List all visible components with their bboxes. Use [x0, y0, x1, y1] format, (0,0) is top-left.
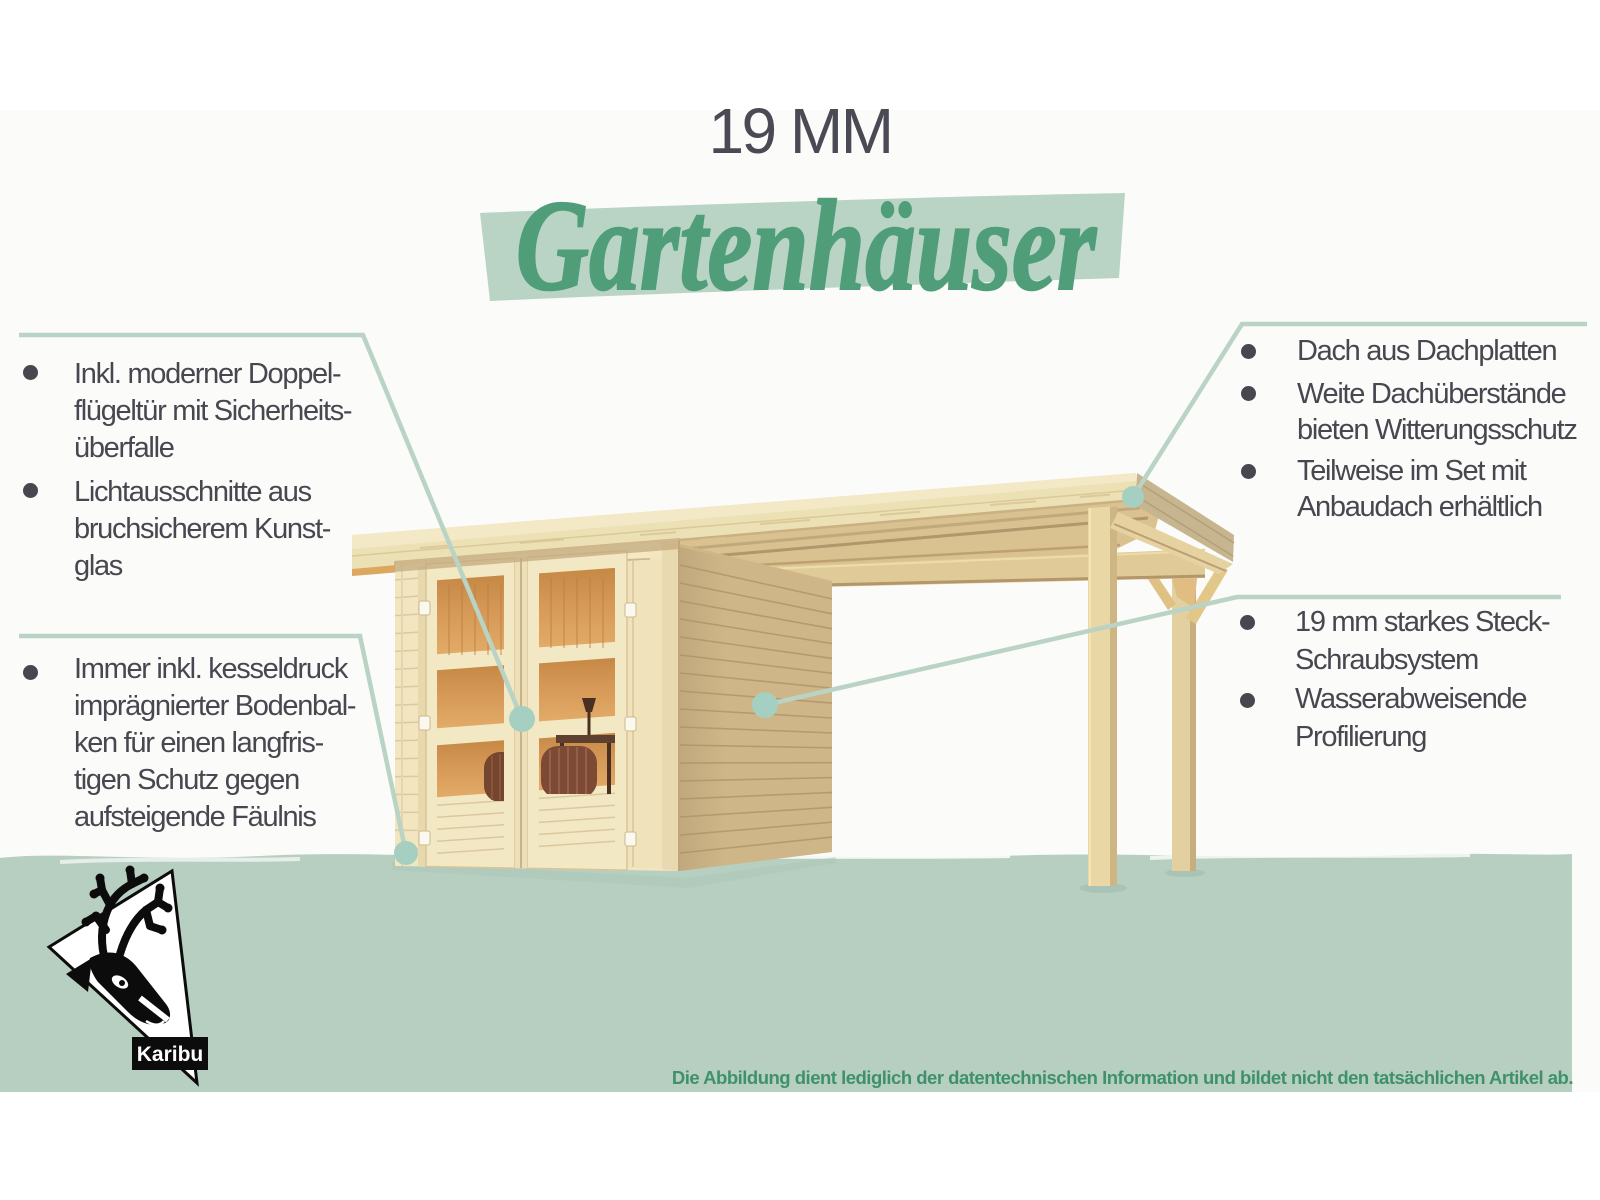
svg-text:Karibu: Karibu: [137, 1043, 204, 1066]
